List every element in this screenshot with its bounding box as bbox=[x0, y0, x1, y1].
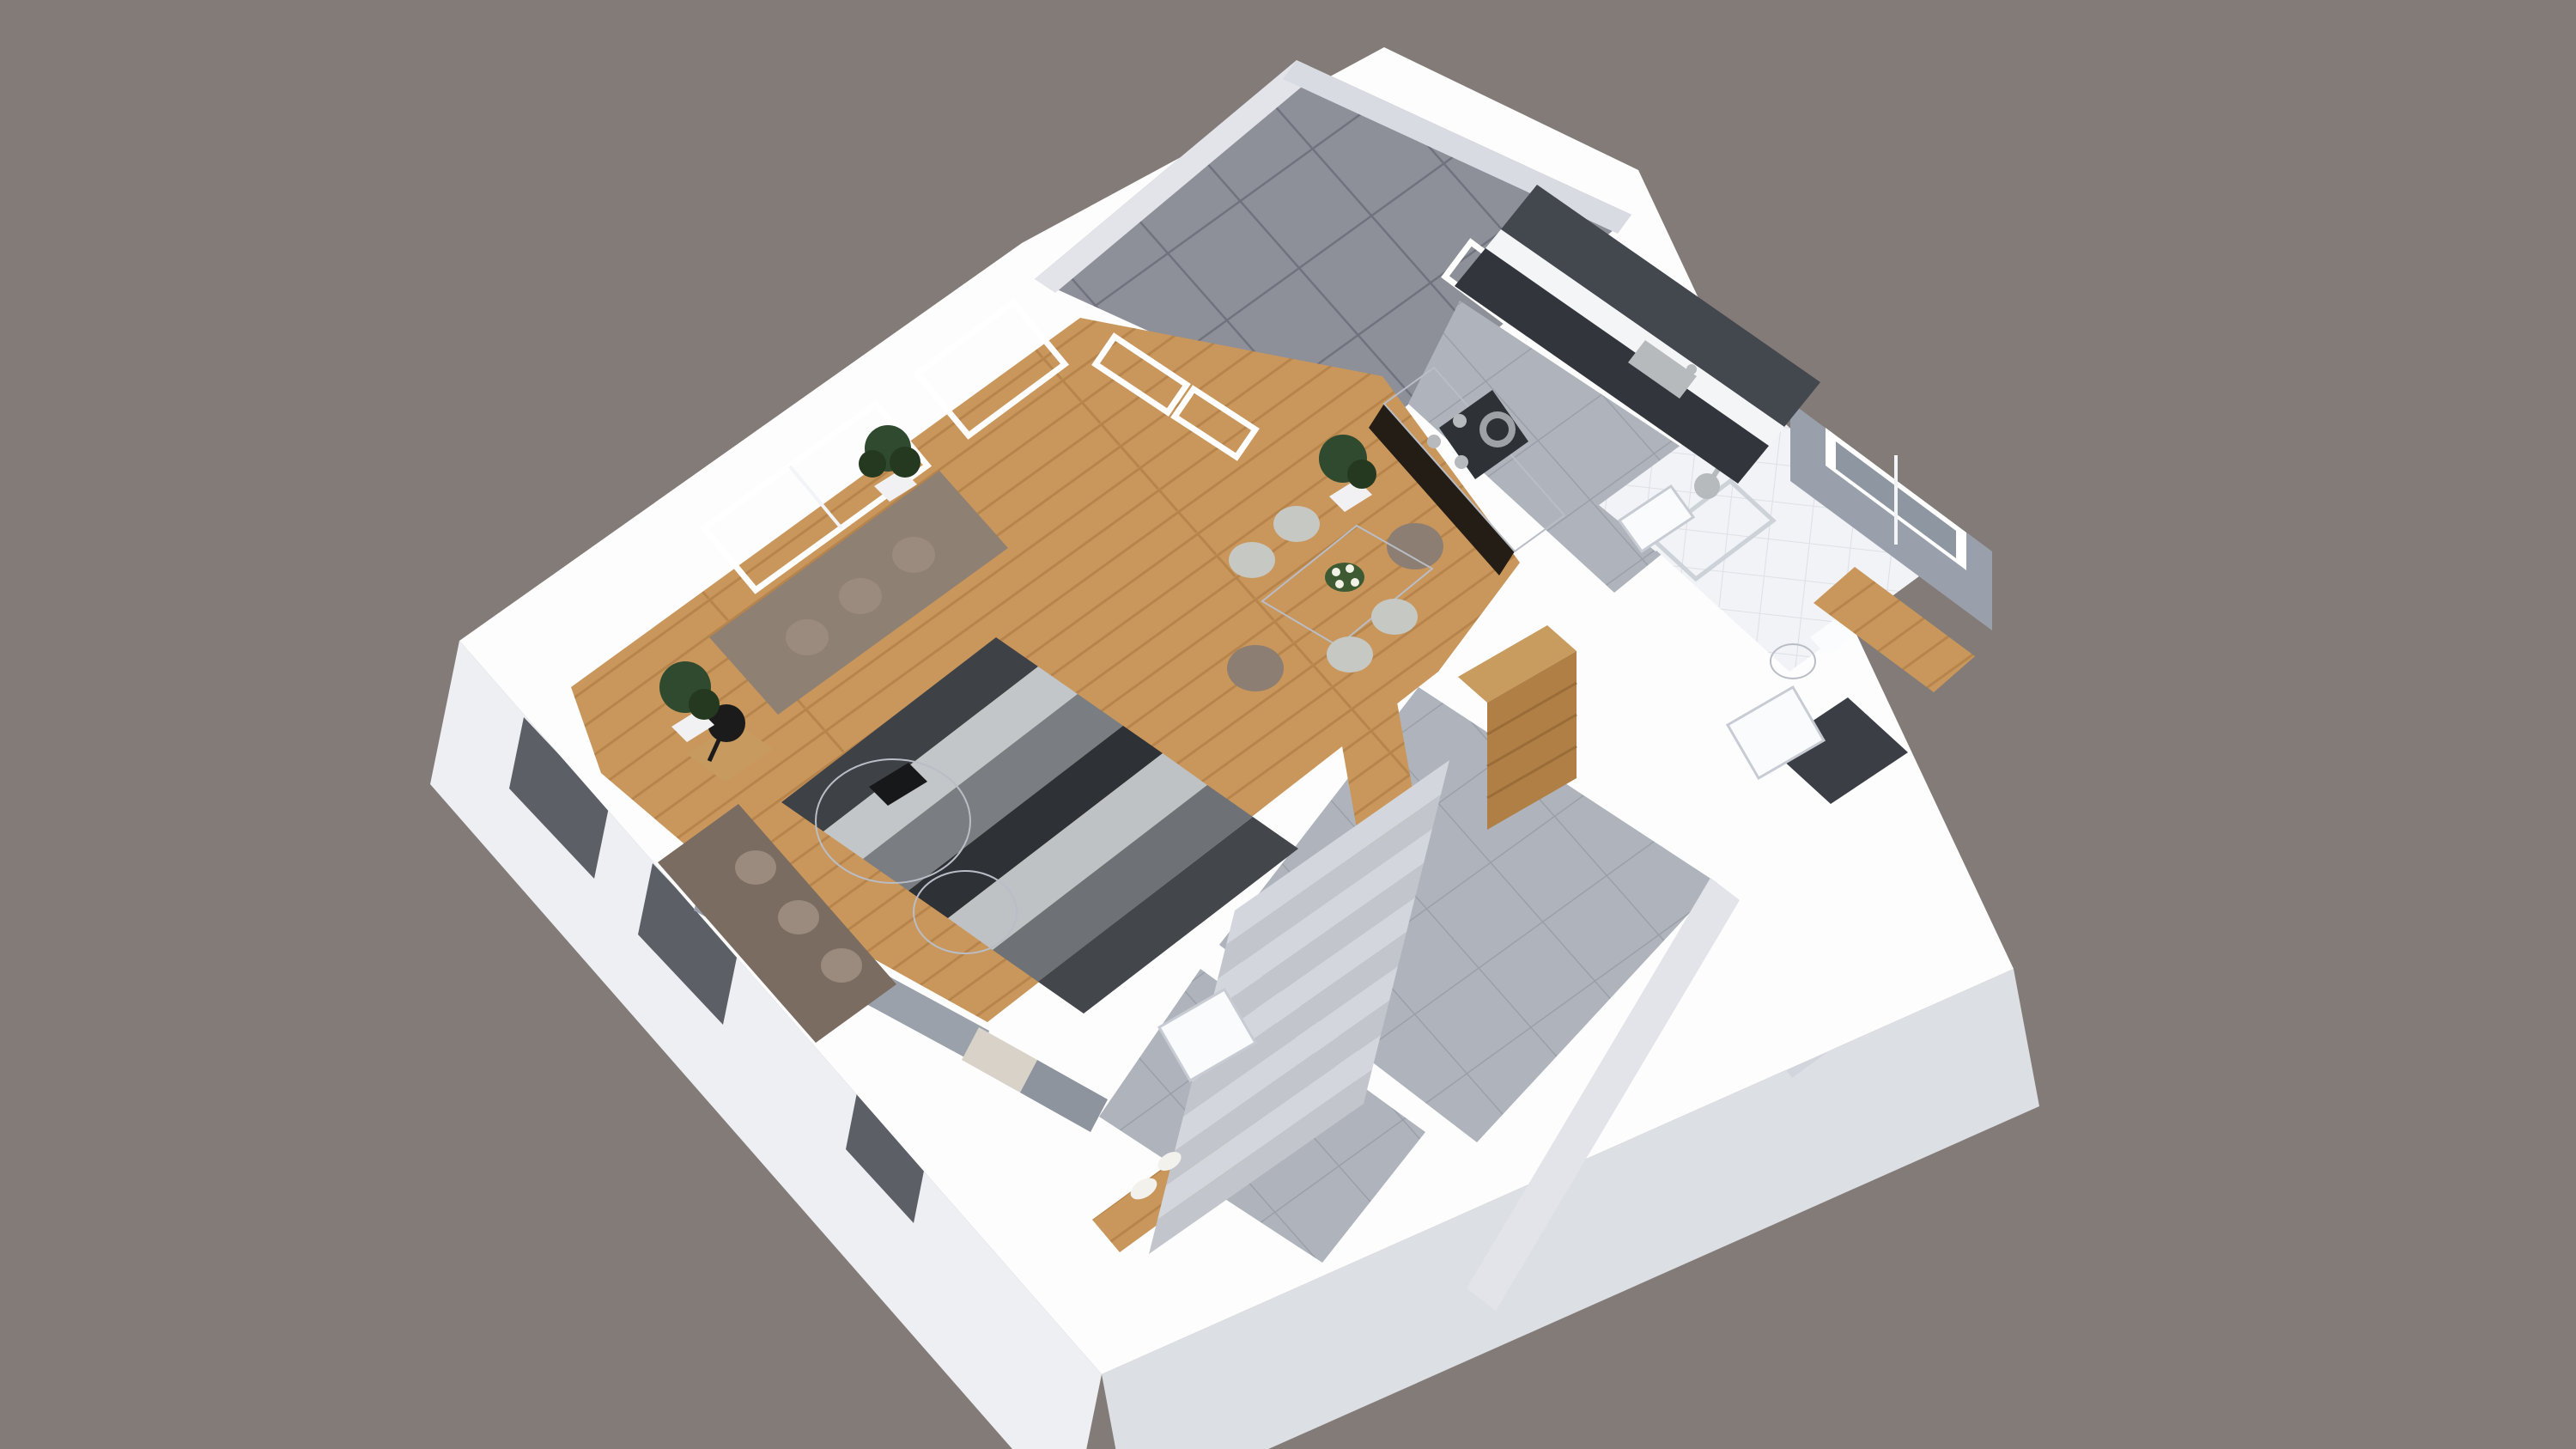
dining-chair-1 bbox=[1273, 506, 1320, 542]
dining-chair-2 bbox=[1229, 542, 1275, 578]
sofa-cushion-2 bbox=[839, 578, 882, 614]
plant-corner-foliage-2 bbox=[689, 689, 720, 720]
flower-white-2 bbox=[1346, 564, 1354, 573]
kitchen-faucet bbox=[1686, 364, 1697, 374]
chaise-cushion-2 bbox=[778, 900, 819, 935]
shower-head-icon bbox=[1694, 473, 1720, 499]
floorplan-render bbox=[0, 0, 2576, 1449]
sofa-cushion-1 bbox=[786, 619, 829, 655]
chaise-cushion-3 bbox=[821, 948, 862, 983]
dining-armchair-1 bbox=[1387, 523, 1443, 569]
flower-bouquet bbox=[1325, 563, 1364, 592]
dining-chair-4 bbox=[1371, 599, 1418, 635]
frying-pan-inner bbox=[1486, 418, 1509, 441]
plant-window-foliage-3 bbox=[859, 450, 886, 478]
flower-white-1 bbox=[1332, 568, 1340, 576]
sofa-cushion-3 bbox=[892, 537, 935, 573]
plant-window-foliage-2 bbox=[890, 447, 920, 478]
flower-white-3 bbox=[1351, 578, 1359, 587]
dining-armchair-2 bbox=[1227, 645, 1284, 691]
flower-white-4 bbox=[1335, 580, 1344, 588]
plant-island-foliage-2 bbox=[1347, 460, 1376, 489]
hob-burner-3 bbox=[1427, 435, 1441, 448]
hob-burner-1 bbox=[1453, 414, 1467, 428]
dining-chair-3 bbox=[1327, 636, 1373, 673]
chaise-cushion-1 bbox=[735, 850, 776, 885]
hob-burner-2 bbox=[1455, 455, 1468, 469]
